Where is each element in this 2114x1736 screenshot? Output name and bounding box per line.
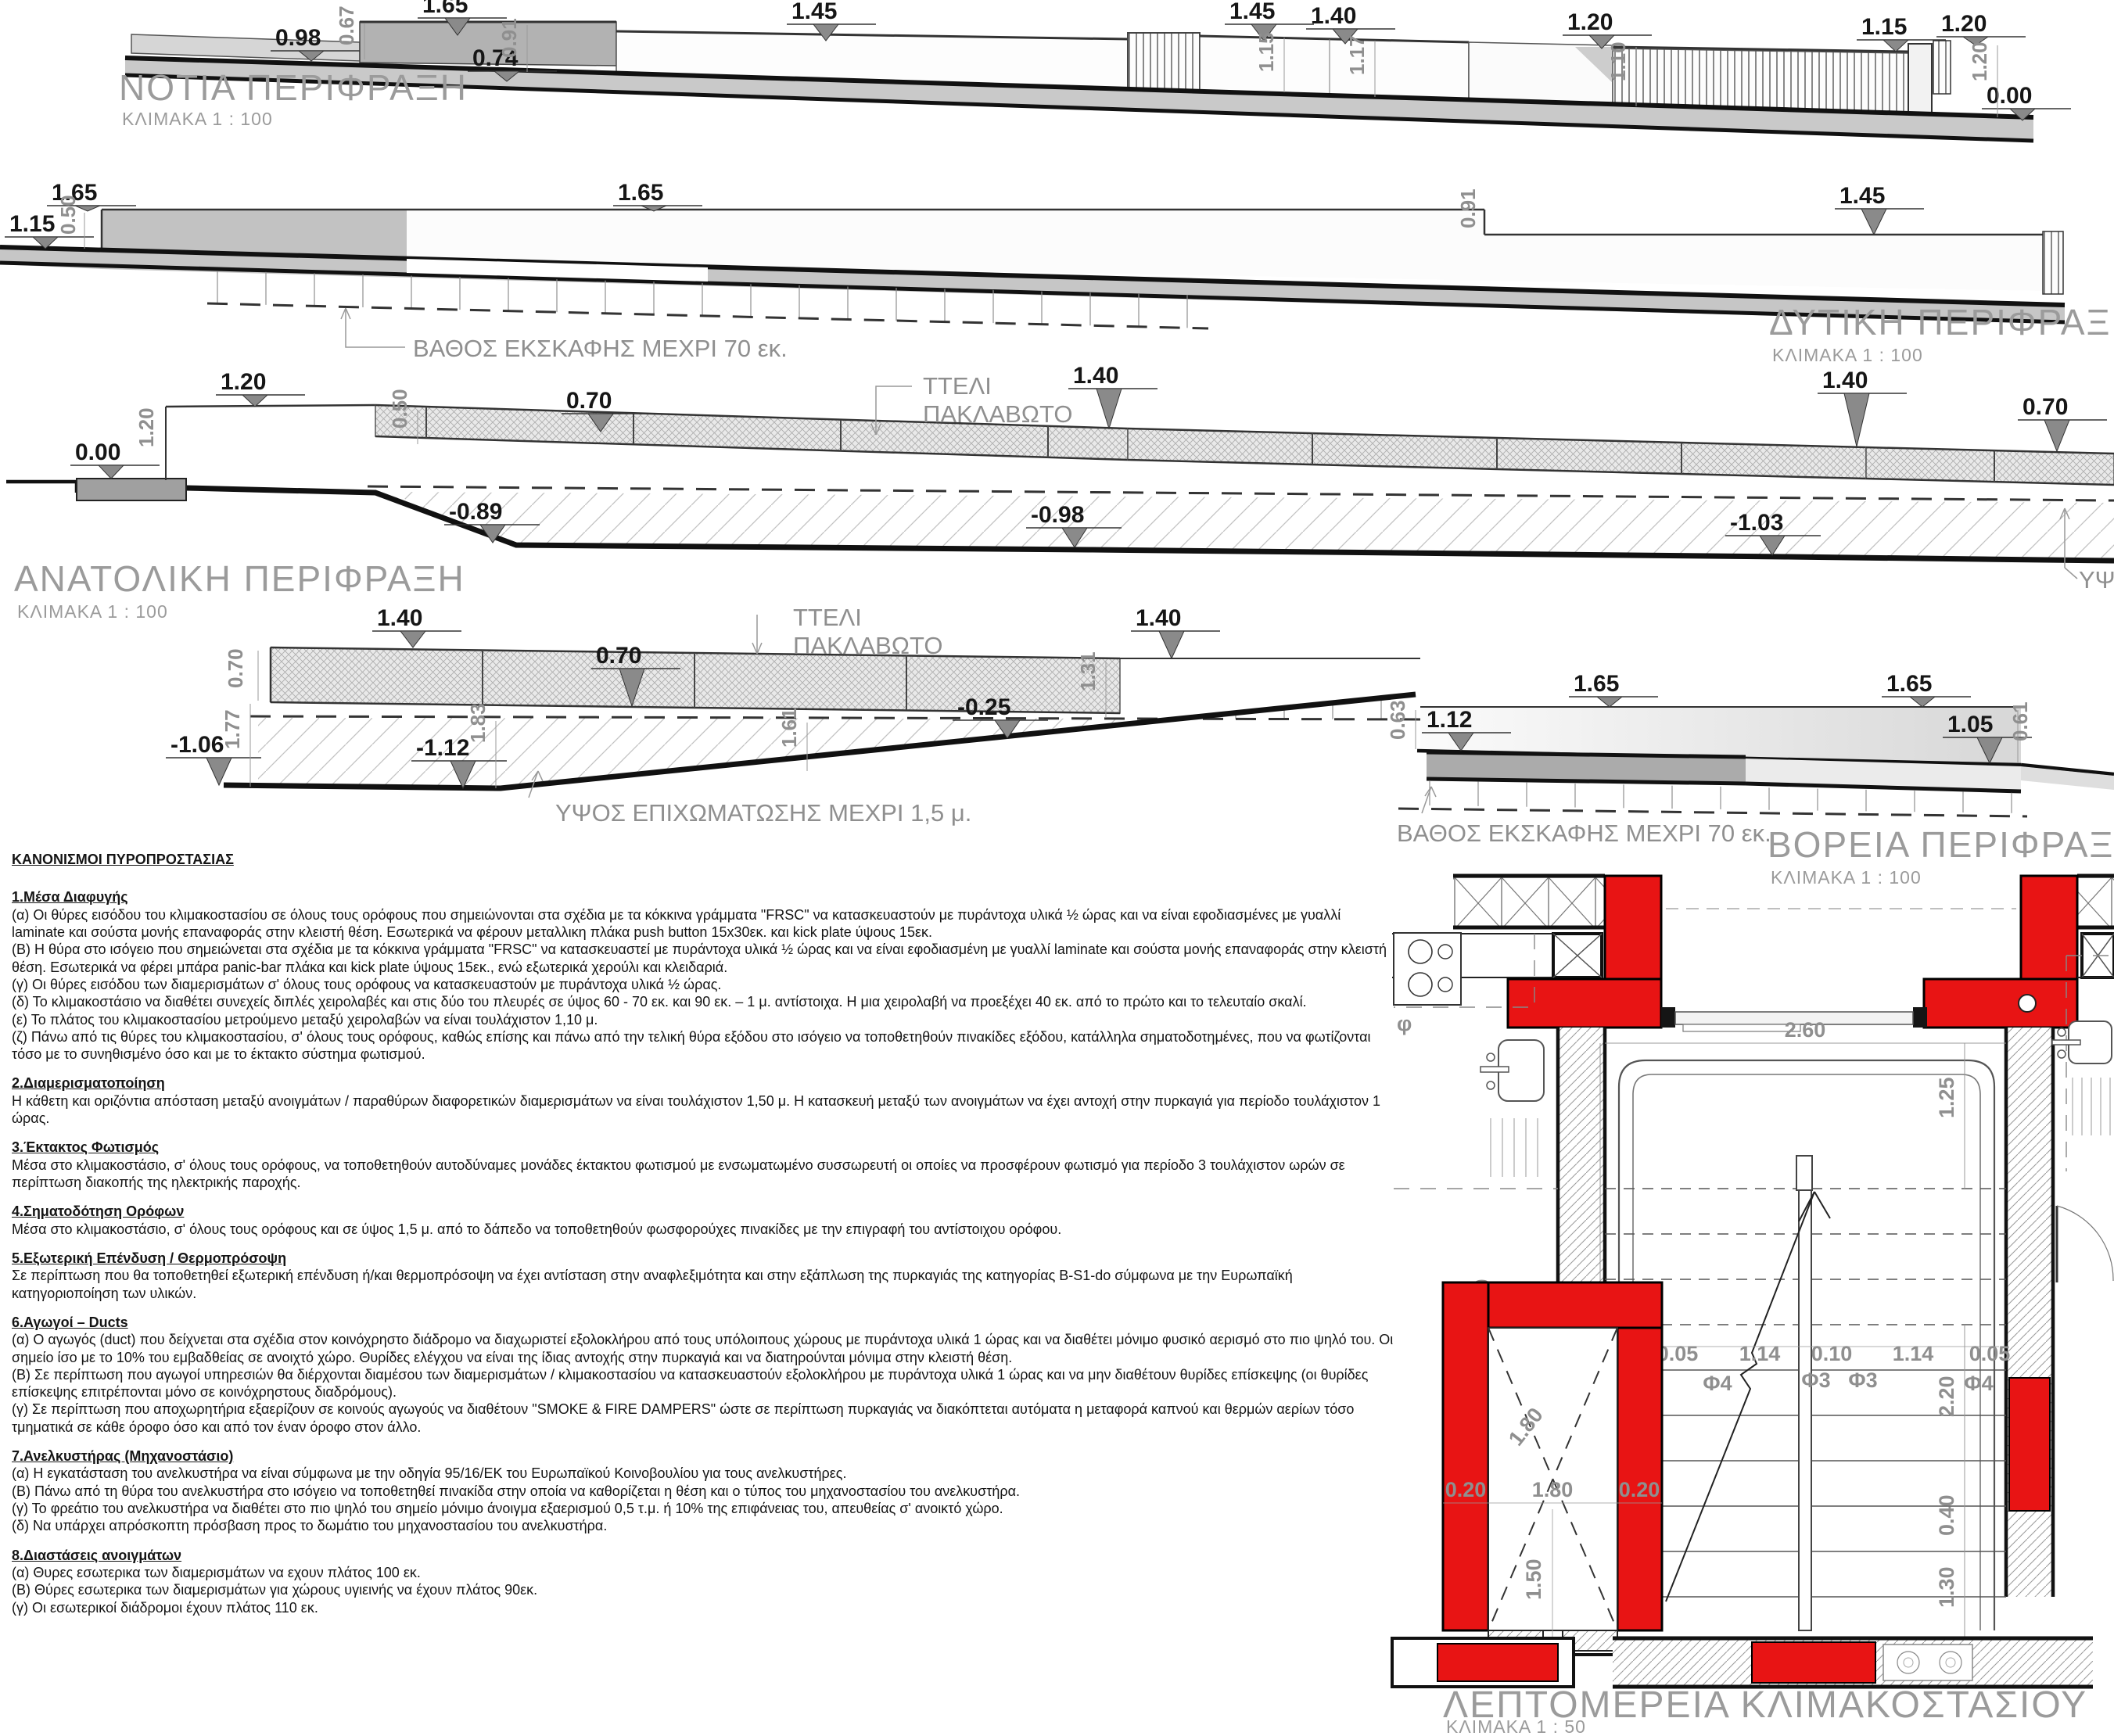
dim-label: Φ4 xyxy=(1964,1372,1993,1395)
dim-label: -1.06 xyxy=(170,732,224,758)
stair-plan: 2.60 1.25 3.45 0.20 2.20 0.40 1.30 0.05 … xyxy=(1392,876,2114,1736)
section-paragraph: (α) Ο αγωγός (duct) που δείχνεται στα σχ… xyxy=(12,1331,1394,1366)
dim-label: φ xyxy=(1397,1012,1412,1035)
dim-label: 1.40 xyxy=(1073,363,1118,389)
section-heading: 7.Ανελκυστήρας (Μηχανοστάσιο) xyxy=(12,1447,1394,1465)
dim-label: 1.25 xyxy=(1935,1077,1958,1118)
section-heading: 2.Διαμερισματοποίηση xyxy=(12,1074,1394,1092)
section-paragraph: (Β) Η θύρα στο ισόγειο που σημειώνεται σ… xyxy=(12,941,1394,976)
dim-label: 1.61 xyxy=(777,708,801,748)
dim-label: 1.20 xyxy=(1968,41,1991,81)
dim-label: 1.40 xyxy=(1311,3,1356,29)
north-band xyxy=(1398,707,2114,816)
appliance xyxy=(1883,1645,1972,1680)
fire-wall-red xyxy=(1752,1642,1875,1683)
north-earth-hatch xyxy=(258,718,1173,787)
dim-label: 2.20 xyxy=(1935,1376,1958,1417)
regulations-text: ΚΑΝΟΝΙΣΜΟΙ ΠΥΡΟΠΡΟΣΤΑΣΙΑΣ 1.Μέσα Διαφυγή… xyxy=(12,851,1394,1628)
dim-label: 0.98 xyxy=(275,25,321,51)
fill-note: ΥΨΟΣ ΕΠΙΧΩΜΑΤΩΣΗΣ ΜΕΧΡΙ 1,5 μ. xyxy=(555,799,971,827)
section-heading: 3.Έκτακτος Φωτισμός xyxy=(12,1139,1394,1156)
section-heading: 6.Αγωγοί – Ducts xyxy=(12,1314,1394,1331)
dim-label: 0.20 xyxy=(1619,1478,1660,1501)
west-excavation-note: ΒΑΘΟΣ ΕΚΣΚΑΦΗΣ ΜΕΧΡΙ 70 εκ. xyxy=(413,335,788,362)
south-end-post xyxy=(1933,41,1951,94)
column-left xyxy=(1553,934,1602,977)
north-mesh-callout: ΤΤΕΛΙ ΠΑΚΛΑΒΩΤΟ xyxy=(752,604,942,659)
fire-wall-red xyxy=(2009,1378,2050,1511)
fire-wall-red xyxy=(1924,979,2077,1028)
section-paragraph: (α) Θυρες εσωτερικα των διαμερισμάτων να… xyxy=(12,1564,1394,1581)
section-paragraph: (γ) Οι εσωτερικοί διάδρομοι έχουν πλάτος… xyxy=(12,1599,1394,1616)
newel-post xyxy=(1796,1156,1812,1190)
east-title: ΑΝΑΤΟΛΙΚΗ ΠΕΡΙΦΡΑΞΗ xyxy=(14,558,465,599)
east-elevation: ΤΤΕΛΙ ΠΑΚΛΑΒΩΤΟ 0.00 1.20 0.70 1.40 1.40… xyxy=(6,363,2114,622)
south-elevation: 1.65 1.45 1.45 1.40 1.20 1.15 1.20 0.98 … xyxy=(119,0,2071,142)
dim-label: 1.30 xyxy=(1935,1566,1958,1608)
dim-label: 0.70 xyxy=(224,648,247,688)
dim-label: Φ4 xyxy=(1703,1372,1732,1395)
dim-label: 1.77 xyxy=(221,709,244,749)
dim-label: 0.70 xyxy=(596,643,641,669)
dim-label: 0.63 xyxy=(1386,700,1409,740)
dim-label: 0.40 xyxy=(1935,1494,1958,1536)
dim-label: 0.91 xyxy=(1456,188,1480,228)
regulation-section-3: 3.Έκτακτος Φωτισμός Μέσα στο κλιμακοστάσ… xyxy=(12,1139,1394,1191)
south-scale: ΚΛΙΜΑΚΑ 1 : 100 xyxy=(122,109,273,129)
north-elevation: ΤΤΕΛΙ ΠΑΚΛΑΒΩΤΟ 1.40 0.70 1.40 1.12 1.65… xyxy=(166,604,2114,888)
east-scale: ΚΛΙΜΑΚΑ 1 : 100 xyxy=(17,601,168,622)
dim-label: 1.15 xyxy=(9,211,55,237)
depth-note: ΒΑΘΟΣ ΕΚΣΚΑΦΗΣ ΜΕΧΡΙ 70 εκ. xyxy=(1397,820,1771,847)
fire-wall-red xyxy=(1605,876,1661,979)
dim-label: 0.67 xyxy=(335,5,358,45)
south-title: ΝΟΤΙΑ ΠΕΡΙΦΡΑΞΗ xyxy=(119,67,468,108)
dim-label: 1.40 xyxy=(377,605,422,631)
stair-stringer xyxy=(1799,1189,1811,1630)
section-paragraph: (δ) Να υπάρχει απρόσκοπτη πρόσβαση προς … xyxy=(12,1517,1394,1534)
drawing-sheet: 1.65 1.45 1.45 1.40 1.20 1.15 1.20 0.98 … xyxy=(0,0,2114,1736)
plan-scale: ΚΛΙΜΑΚΑ 1 : 50 xyxy=(1446,1716,1586,1736)
fire-wall-red xyxy=(1437,1644,1558,1681)
section-heading: 1.Μέσα Διαφυγής xyxy=(12,888,1394,906)
dim-label: 1.83 xyxy=(466,703,490,743)
dim-label: 0.00 xyxy=(1987,83,2032,109)
dim-label: Φ3 xyxy=(1801,1368,1830,1392)
regulations-title: ΚΑΝΟΝΙΣΜΟΙ ΠΥΡΟΠΡΟΣΤΑΣΙΑΣ xyxy=(12,851,1394,868)
west-elevation: ΒΑΘΟΣ ΕΚΣΚΑΦΗΣ ΜΕΧΡΙ 70 εκ. 1.15 1.65 1.… xyxy=(0,180,2114,365)
section-heading: 4.Σηματοδότηση Ορόφων xyxy=(12,1203,1394,1220)
dim-label: 1.45 xyxy=(1839,183,1885,209)
dim-label: 1.40 xyxy=(1136,605,1181,631)
regulation-section-8: 8.Διαστάσεις ανοιγμάτων (α) Θυρες εσωτερ… xyxy=(12,1547,1394,1616)
dim-label: 1.20 xyxy=(1941,11,1987,37)
dim-label: 1.80 xyxy=(1532,1478,1574,1501)
mesh-label: ΠΑΚΛΑΒΩΤΟ xyxy=(793,632,942,659)
masonry-wall xyxy=(1453,876,1605,927)
section-paragraph: Μέσα στο κλιμακοστάσιο, σ' όλους τους ορ… xyxy=(12,1157,1394,1192)
section-paragraph: Σε περίπτωση που θα τοποθετηθεί εξωτερικ… xyxy=(12,1267,1394,1302)
dim-label: 0.20 xyxy=(1445,1478,1487,1501)
dim-label: 0.10 xyxy=(1811,1342,1853,1365)
dim-label: 1.65 xyxy=(1574,671,1619,697)
dim-label: Φ3 xyxy=(1848,1368,1877,1392)
dim-label: 0.00 xyxy=(75,439,120,465)
west-title: ΔΥΤΙΚΗ ΠΕΡΙΦΡΑΞΗ xyxy=(1769,302,2114,343)
section-heading: 5.Εξωτερική Επένδυση / Θερμοπρόσοψη xyxy=(12,1250,1394,1267)
dim-label: 1.20 xyxy=(1567,9,1613,35)
dim-label: 1.40 xyxy=(1822,368,1868,393)
dim-label: 1.20 xyxy=(221,369,266,395)
dim-label: 0.50 xyxy=(388,389,411,429)
section-paragraph: (Β) Σε περίπτωση που αγωγοί υπηρεσιών θα… xyxy=(12,1366,1394,1401)
door-swing xyxy=(2057,1206,2113,1281)
section-paragraph: (ε) Το πλάτος του κλιμακοστασίου μετρούμ… xyxy=(12,1011,1394,1028)
north-scale: ΚΛΙΜΑΚΑ 1 : 100 xyxy=(1771,867,1922,888)
north-title: ΒΟΡΕΙΑ ΠΕΡΙΦΡΑΞΗ xyxy=(1768,824,2114,865)
mesh-label: ΠΑΚΛΑΒΩΤΟ xyxy=(923,400,1072,428)
section-paragraph: (α) Η εγκατάσταση του ανελκυστήρα να είν… xyxy=(12,1465,1394,1482)
dim-label: 0.05 xyxy=(1657,1342,1699,1365)
dim-label: -0.25 xyxy=(957,694,1010,720)
section-paragraph: (γ) Το φρεάτιο του ανελκυστήρα να διαθέτ… xyxy=(12,1500,1394,1517)
dim-label: -1.03 xyxy=(1730,510,1783,536)
bottom-wall-band xyxy=(1392,1638,2093,1687)
dim-label: 0.70 xyxy=(2022,394,2068,420)
dim-label: 1.45 xyxy=(791,0,837,24)
section-paragraph: (α) Οι θύρες εισόδου του κλιμακοστασίου … xyxy=(12,906,1394,942)
regulation-section-6: 6.Αγωγοί – Ducts (α) Ο αγωγός (duct) που… xyxy=(12,1314,1394,1436)
dim-label: 1.05 xyxy=(1947,712,1993,737)
regulation-section-1: 1.Μέσα Διαφυγής (α) Οι θύρες εισόδου του… xyxy=(12,888,1394,1063)
west-scale: ΚΛΙΜΑΚΑ 1 : 100 xyxy=(1772,345,1923,365)
dim-label: -1.12 xyxy=(416,735,469,761)
dim-label: 1.12 xyxy=(1427,707,1472,733)
dim-label: 0.05 xyxy=(1969,1342,2011,1365)
dim-label: 1.17 xyxy=(1345,35,1369,75)
dim-label: -0.98 xyxy=(1031,502,1084,528)
dim-label: 1.65 xyxy=(422,0,468,18)
dim-label: 1.45 xyxy=(1229,0,1275,24)
dim-label: 0.70 xyxy=(566,388,612,414)
section-paragraph: (δ) Το κλιμακοστάσιο να διαθέτει συνεχεί… xyxy=(12,993,1394,1010)
section-heading: 8.Διαστάσεις ανοιγμάτων xyxy=(12,1547,1394,1564)
regulation-section-2: 2.Διαμερισματοποίηση Η κάθετη και οριζόν… xyxy=(12,1074,1394,1127)
regulation-section-5: 5.Εξωτερική Επένδυση / Θερμοπρόσοψη Σε π… xyxy=(12,1250,1394,1302)
fire-wall-red xyxy=(2021,876,2077,979)
dim-label: 1.14 xyxy=(1893,1342,1934,1365)
section-paragraph: (Β) Θύρες εσωτερικα των διαμερισμάτων γι… xyxy=(12,1581,1394,1598)
dim-label: 1.65 xyxy=(618,180,663,206)
section-paragraph: (Β) Πάνω από τη θύρα του ανελκυστήρα στο… xyxy=(12,1483,1394,1500)
mesh-label: ΤΤΕΛΙ xyxy=(923,372,992,400)
clipped-note: ΥΨΟ xyxy=(2079,566,2114,594)
section-paragraph: Μέσα στο κλιμακοστάσιο, σ' όλους τους ορ… xyxy=(12,1221,1394,1238)
south-gate xyxy=(1128,33,1200,91)
regulation-section-7: 7.Ανελκυστήρας (Μηχανοστάσιο) (α) Η εγκα… xyxy=(12,1447,1394,1535)
section-paragraph: (ζ) Πάνω από τις θύρες του κλιμακοστασίο… xyxy=(12,1028,1394,1063)
door-knob xyxy=(2019,995,2036,1012)
dim-label: 1.15 xyxy=(1861,14,1907,40)
dim-label: 1.10 xyxy=(1606,41,1630,81)
dim-label: 1.65 xyxy=(1886,671,1932,697)
section-paragraph: (γ) Σε περίπτωση που αποχωρητήρια εξαερί… xyxy=(12,1401,1394,1436)
mesh-label: ΤΤΕΛΙ xyxy=(793,604,862,631)
dim-label: 0.50 xyxy=(56,195,80,235)
dim-label: 0.91 xyxy=(497,18,521,58)
fire-wall-red xyxy=(1508,979,1661,1028)
regulation-section-4: 4.Σηματοδότηση Ορόφων Μέσα στο κλιμακοστ… xyxy=(12,1203,1394,1238)
elevator-shaft: 1.80 0.20 1.80 0.20 1.50 xyxy=(1443,1282,1662,1655)
dim-label: 1.15 xyxy=(1254,32,1278,72)
dim-label: 1.20 xyxy=(135,407,158,447)
dim-label: 1.14 xyxy=(1739,1342,1781,1365)
dim-label: -0.89 xyxy=(449,499,502,525)
dim-label: 1.31 xyxy=(1076,651,1100,691)
door-leaf xyxy=(1683,1024,1800,1031)
dim-label: 2.60 xyxy=(1785,1018,1826,1042)
section-paragraph: Η κάθετη και οριζόντια απόσταση μεταξύ α… xyxy=(12,1092,1394,1128)
kitchen-fixtures: φ xyxy=(1394,933,1558,1189)
dim-label: 1.50 xyxy=(1522,1558,1545,1600)
dim-label: 0.61 xyxy=(2008,701,2032,741)
section-paragraph: (γ) Οι θύρες εισόδου των διαμερισμάτων σ… xyxy=(12,976,1394,993)
